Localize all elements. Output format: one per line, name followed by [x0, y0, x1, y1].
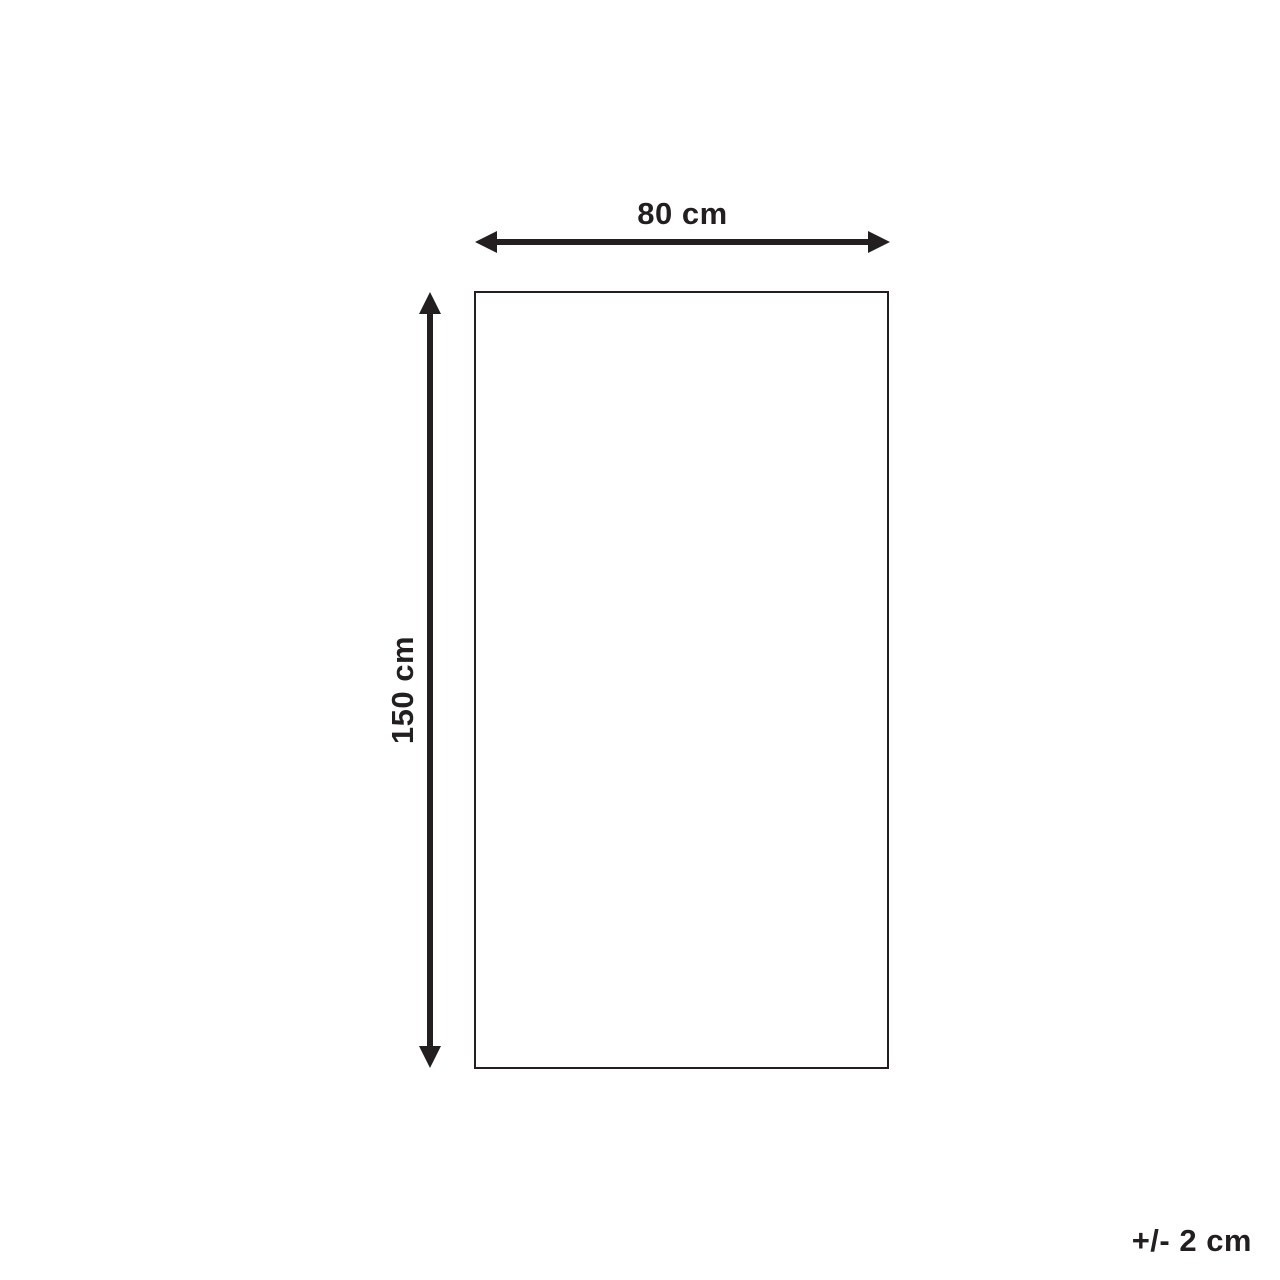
dimension-diagram: 80 cm 150 cm +/- 2 cm	[0, 0, 1280, 1280]
tolerance-label: +/- 2 cm	[1132, 1224, 1252, 1258]
width-arrowhead-right-icon	[868, 231, 890, 253]
height-arrowhead-top-icon	[419, 292, 441, 314]
product-outline-rectangle	[474, 291, 889, 1069]
width-dimension-arrow-icon	[474, 229, 891, 255]
width-dimension-label: 80 cm	[474, 197, 891, 231]
height-dimension-arrow-icon	[417, 291, 443, 1069]
width-arrowhead-left-icon	[475, 231, 497, 253]
height-arrowhead-bottom-icon	[419, 1046, 441, 1068]
height-dimension-label: 150 cm	[386, 630, 420, 750]
